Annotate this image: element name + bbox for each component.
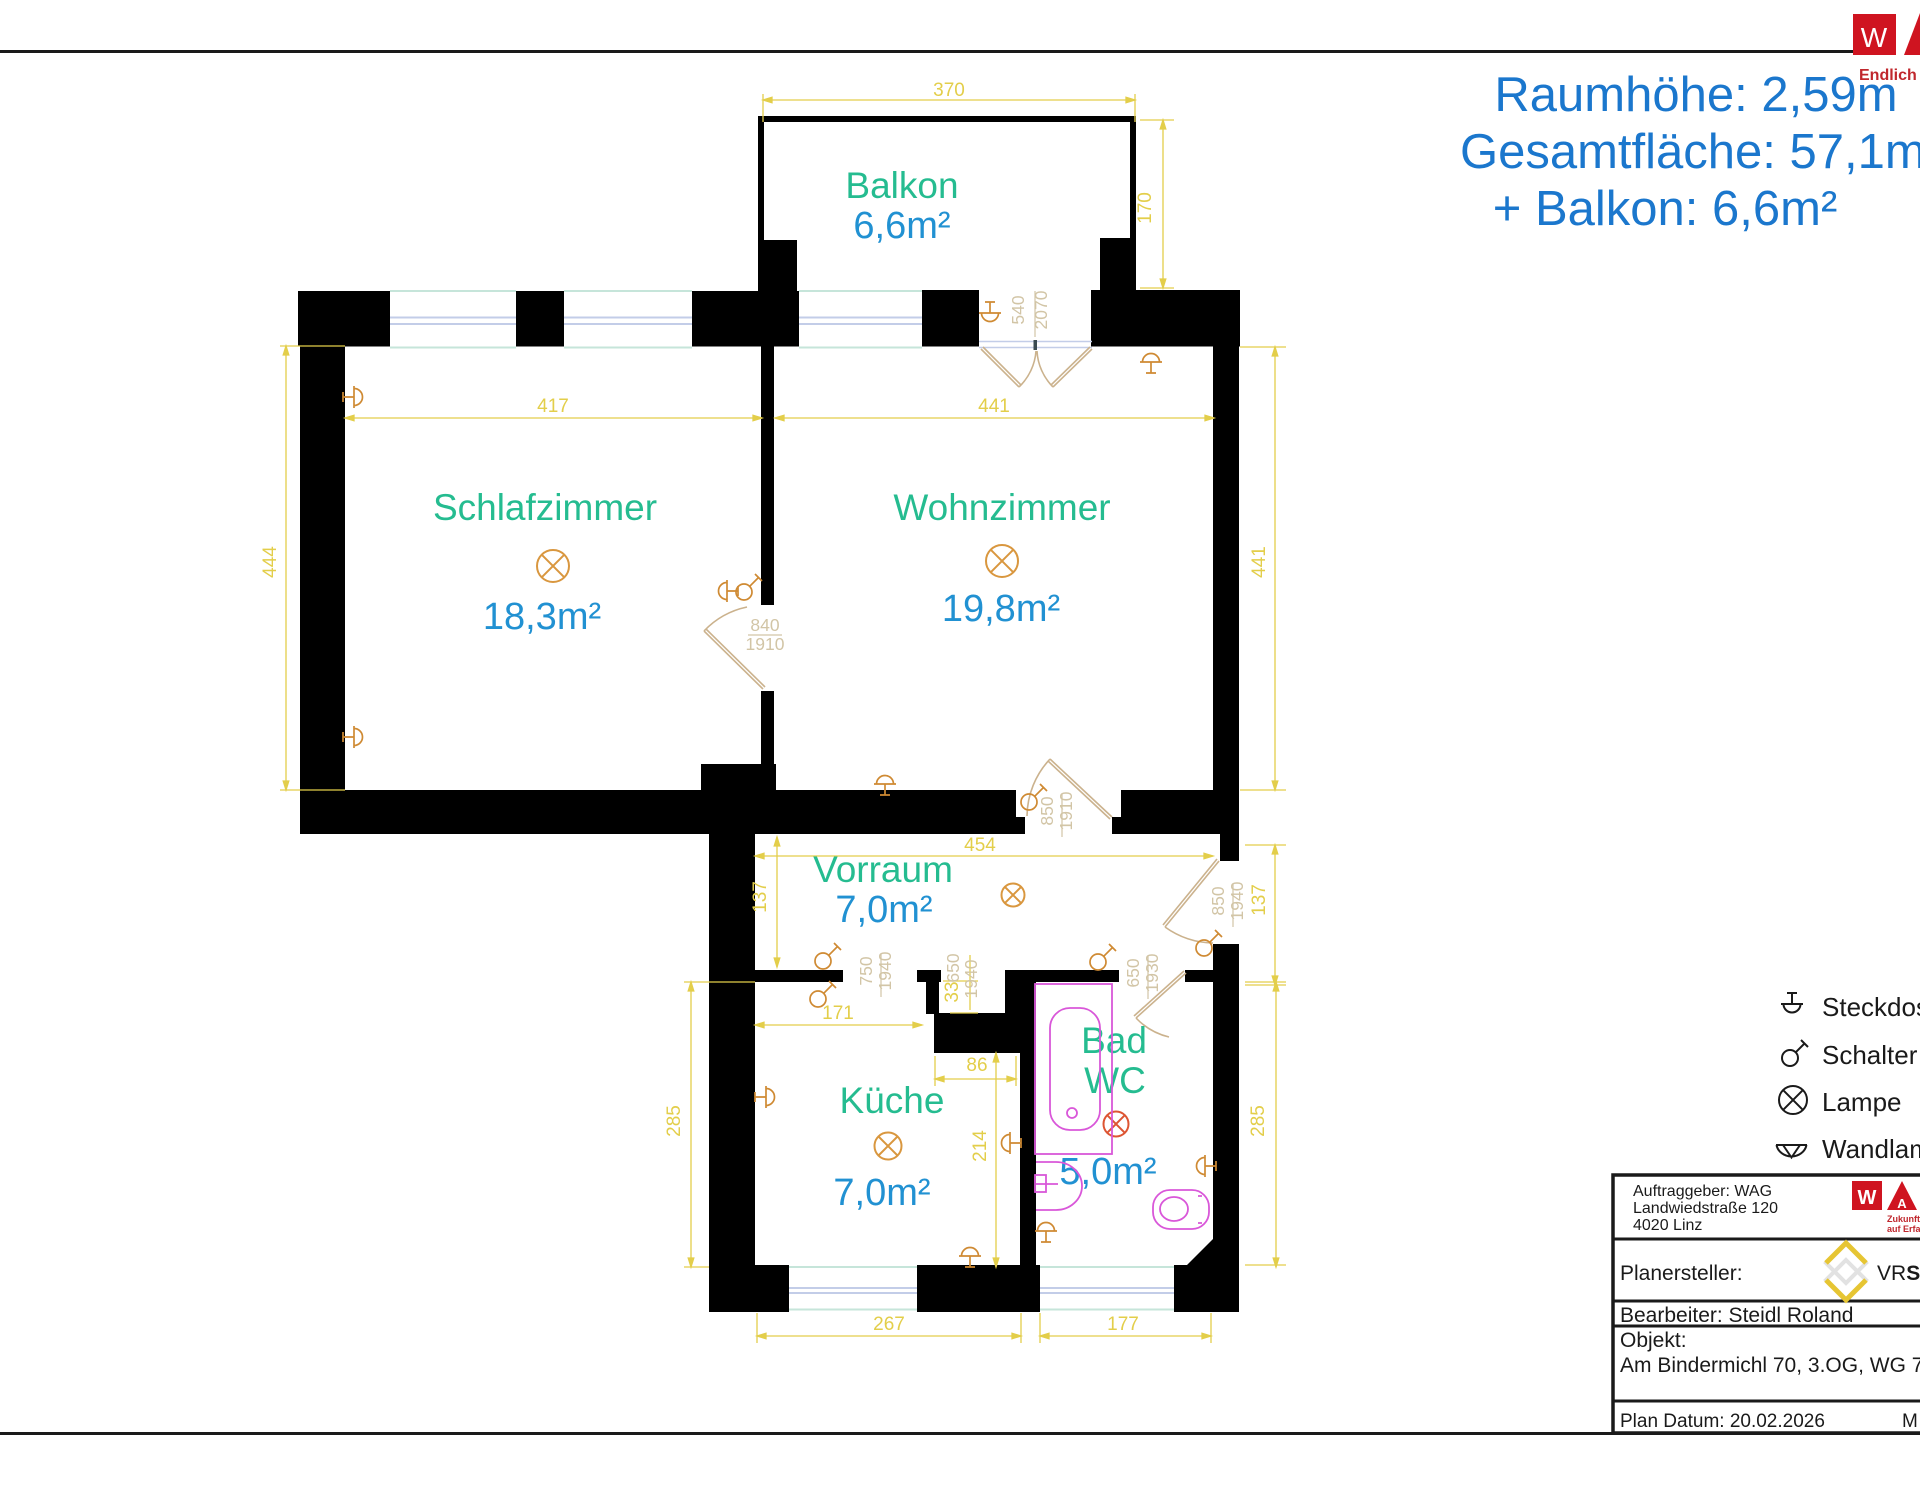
svg-text:2070: 2070: [1031, 290, 1051, 329]
svg-text:WC: WC: [1084, 1060, 1146, 1101]
svg-text:137: 137: [750, 881, 771, 913]
svg-text:454: 454: [964, 835, 996, 856]
svg-text:441: 441: [978, 396, 1010, 417]
svg-text:750: 750: [856, 956, 876, 985]
svg-text:Wohnzimmer: Wohnzimmer: [893, 487, 1110, 528]
svg-text:86: 86: [966, 1055, 987, 1076]
svg-text:850: 850: [1037, 796, 1057, 825]
svg-text:7,0m²: 7,0m²: [835, 889, 932, 931]
svg-text:1910: 1910: [1056, 791, 1076, 830]
svg-text:W: W: [1858, 1187, 1877, 1209]
svg-text:650: 650: [1123, 958, 1143, 987]
svg-text:auf Erfahr: auf Erfahr: [1887, 1224, 1920, 1234]
svg-text:Bearbeiter: Steidl Roland: Bearbeiter: Steidl Roland: [1620, 1304, 1853, 1327]
svg-text:Raumhöhe: 2,59m: Raumhöhe: 2,59m: [1494, 68, 1897, 122]
svg-text:Planersteller:: Planersteller:: [1620, 1262, 1743, 1285]
svg-text:33: 33: [942, 981, 963, 1002]
svg-text:1930: 1930: [1142, 953, 1162, 992]
svg-text:Balkon: Balkon: [845, 165, 958, 206]
svg-text:540: 540: [1008, 295, 1028, 324]
svg-text:1940: 1940: [961, 959, 981, 998]
svg-text:19,8m²: 19,8m²: [942, 588, 1060, 630]
svg-text:Schalter: Schalter: [1822, 1040, 1918, 1070]
svg-text:Schlafzimmer: Schlafzimmer: [433, 487, 657, 528]
svg-text:Am Bindermichl 70, 3.OG, WG 7: Am Bindermichl 70, 3.OG, WG 7: [1620, 1354, 1920, 1377]
svg-text:650: 650: [943, 953, 963, 982]
svg-text:170: 170: [1135, 192, 1156, 224]
svg-text:177: 177: [1107, 1314, 1139, 1335]
svg-text:285: 285: [664, 1105, 685, 1137]
svg-text:M: M: [1902, 1411, 1918, 1432]
svg-text:137: 137: [1249, 884, 1270, 916]
svg-text:Auftraggeber: WAG: Auftraggeber: WAG: [1633, 1183, 1772, 1200]
svg-text:A: A: [1897, 1196, 1907, 1211]
svg-text:1910: 1910: [746, 634, 785, 654]
svg-text:Küche: Küche: [840, 1080, 945, 1121]
svg-text:Zukunftssi: Zukunftssi: [1887, 1214, 1920, 1224]
svg-text:Landwiedstraße 120: Landwiedstraße 120: [1633, 1200, 1778, 1217]
svg-text:4020 Linz: 4020 Linz: [1633, 1217, 1702, 1234]
svg-text:171: 171: [822, 1003, 854, 1024]
svg-text:Lampe: Lampe: [1822, 1087, 1902, 1117]
svg-text:Wandlampe: Wandlampe: [1822, 1134, 1920, 1164]
svg-text:441: 441: [1249, 546, 1270, 578]
svg-text:Steckdose: Steckdose: [1822, 992, 1920, 1022]
svg-text:417: 417: [537, 396, 569, 417]
svg-text:7,0m²: 7,0m²: [833, 1172, 930, 1214]
svg-text:444: 444: [260, 546, 281, 578]
svg-text:Gesamtfläche: 57,1m²: Gesamtfläche: 57,1m²: [1460, 125, 1920, 179]
svg-text:285: 285: [1248, 1105, 1269, 1137]
svg-text:Objekt:: Objekt:: [1620, 1329, 1687, 1352]
svg-text:5,0m²: 5,0m²: [1059, 1151, 1156, 1193]
svg-text:370: 370: [933, 80, 965, 101]
svg-text:W: W: [1861, 22, 1888, 53]
svg-text:Vorraum: Vorraum: [813, 849, 953, 890]
svg-text:840: 840: [750, 615, 779, 635]
svg-text:1940: 1940: [875, 951, 895, 990]
svg-text:267: 267: [873, 1314, 905, 1335]
svg-text:+ Balkon: 6,6m²: + Balkon: 6,6m²: [1493, 182, 1838, 236]
svg-text:850: 850: [1208, 886, 1228, 915]
svg-text:18,3m²: 18,3m²: [483, 596, 601, 638]
svg-text:214: 214: [970, 1130, 991, 1162]
svg-text:VRSteidl: VRSteidl: [1877, 1262, 1920, 1285]
svg-text:6,6m²: 6,6m²: [853, 205, 950, 247]
svg-text:Plan Datum: 20.02.2026: Plan Datum: 20.02.2026: [1620, 1411, 1825, 1432]
svg-text:1940: 1940: [1227, 881, 1247, 920]
svg-text:Bad: Bad: [1081, 1020, 1147, 1061]
